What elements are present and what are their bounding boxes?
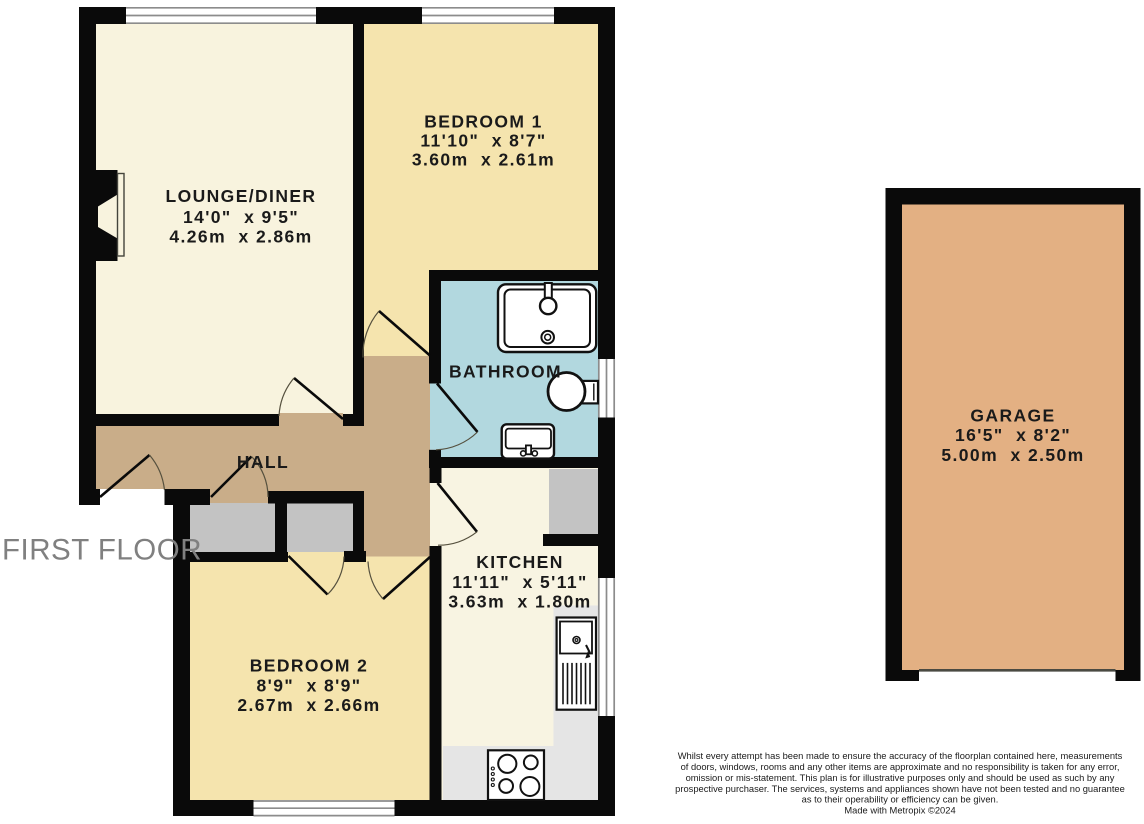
svg-text:BEDROOM 1: BEDROOM 1	[424, 112, 543, 132]
svg-text:3.63m x 1.80m: 3.63m x 1.80m	[448, 592, 591, 612]
svg-text:11'11" x 5'11": 11'11" x 5'11"	[452, 572, 587, 592]
svg-text:as to their operability or eff: as to their operability or efficiency ca…	[802, 795, 999, 805]
svg-text:11'10" x 8'7": 11'10" x 8'7"	[420, 131, 546, 151]
svg-text:Made with Metropix ©2024: Made with Metropix ©2024	[844, 806, 955, 816]
svg-text:of doors, windows, rooms and a: of doors, windows, rooms and any other i…	[681, 762, 1120, 772]
svg-text:BATHROOM: BATHROOM	[449, 362, 562, 382]
svg-text:Whilst every attempt has been: Whilst every attempt has been made to en…	[678, 751, 1123, 761]
svg-text:14'0" x 9'5": 14'0" x 9'5"	[183, 207, 299, 227]
svg-text:4.26m x 2.86m: 4.26m x 2.86m	[169, 227, 312, 247]
svg-text:HALL: HALL	[237, 452, 289, 472]
svg-text:3.60m x 2.61m: 3.60m x 2.61m	[412, 150, 555, 170]
svg-text:FIRST FLOOR: FIRST FLOOR	[2, 534, 202, 567]
svg-text:GARAGE: GARAGE	[970, 406, 1055, 426]
svg-text:KITCHEN: KITCHEN	[476, 552, 564, 572]
svg-text:LOUNGE/DINER: LOUNGE/DINER	[166, 186, 317, 206]
svg-text:8'9" x 8'9": 8'9" x 8'9"	[257, 675, 362, 695]
svg-text:omission or mis-statement. Thi: omission or mis-statement. This plan is …	[686, 773, 1115, 783]
svg-text:16'5" x 8'2": 16'5" x 8'2"	[955, 425, 1071, 445]
svg-text:5.00m x 2.50m: 5.00m x 2.50m	[941, 445, 1084, 465]
svg-text:prospective purchaser. The ser: prospective purchaser. The services, sys…	[675, 784, 1125, 794]
svg-text:2.67m x 2.66m: 2.67m x 2.66m	[237, 695, 380, 715]
svg-text:BEDROOM 2: BEDROOM 2	[250, 656, 369, 676]
